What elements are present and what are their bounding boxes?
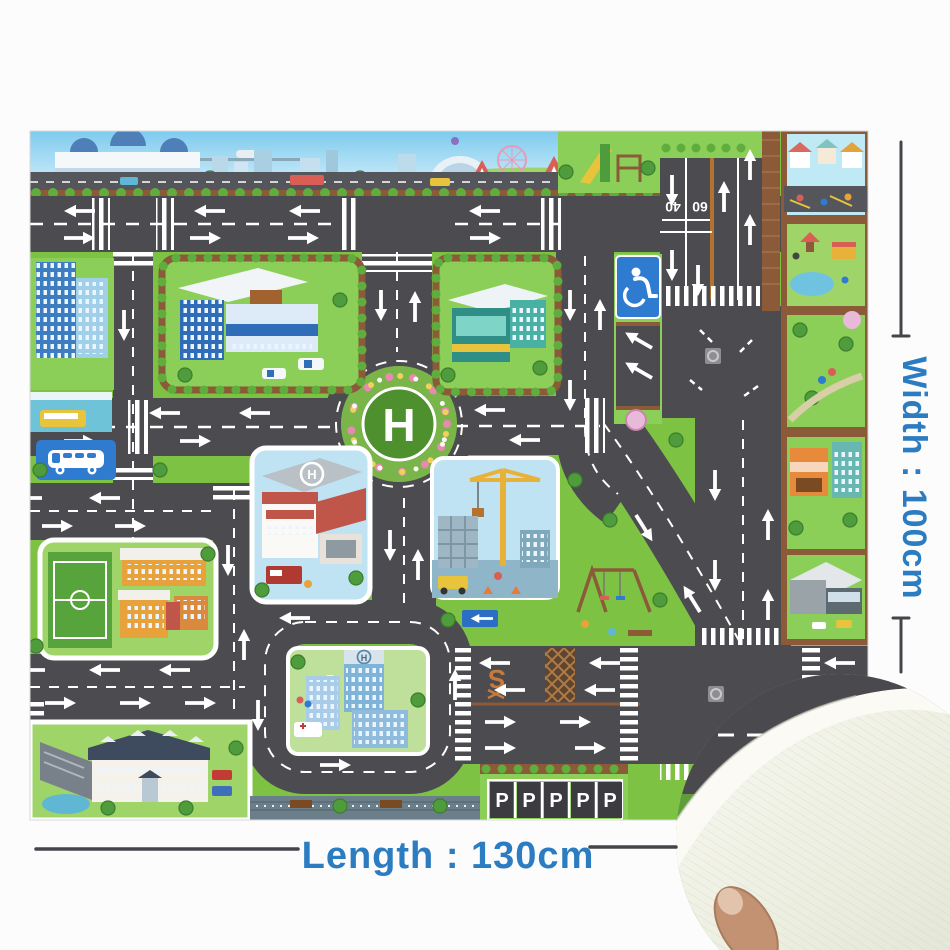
manhole-icon (708, 686, 724, 702)
boardwalk (250, 796, 480, 820)
hospital-helipad-letter: H (361, 653, 368, 663)
parking-letter: P (549, 790, 562, 812)
scene: S 40 60 (0, 0, 950, 950)
hospital-block: H (288, 648, 428, 754)
fire-helipad-letter: H (307, 467, 316, 482)
park-block-right (784, 311, 868, 430)
mansion-block (30, 722, 250, 820)
width-dimension-label: Width : 100cm (895, 356, 933, 599)
school-block (40, 540, 216, 658)
accessible-column (614, 254, 662, 430)
police-station-block (162, 258, 362, 390)
bus-sign-icon (36, 440, 116, 480)
houses-block (784, 131, 868, 218)
flower-tree (626, 410, 646, 430)
wheelchair-sign-icon (616, 256, 660, 318)
store-block (436, 258, 558, 392)
svg-text:60: 60 (692, 199, 708, 215)
construction-block (432, 458, 558, 598)
width-dimension: Width : 100cm (893, 142, 933, 672)
parking-letter: P (576, 790, 589, 812)
playground-top (558, 131, 660, 193)
helipad-letter: H (382, 399, 415, 451)
length-dimension: Length : 130cm (36, 835, 676, 877)
manhole-icon (705, 348, 721, 364)
length-dimension-label: Length : 130cm (302, 835, 595, 877)
svg-text:40: 40 (665, 199, 681, 215)
parking-letter: P (522, 790, 535, 812)
apartment-bus-block (30, 258, 116, 480)
box-junction (545, 648, 575, 702)
parking-area: P P P P P (480, 764, 628, 820)
pond-market-block (784, 221, 868, 309)
product-photo: S 40 60 (0, 0, 950, 950)
dealership-block (784, 552, 868, 642)
parking-letter: P (495, 790, 508, 812)
parking-letter: P (603, 790, 616, 812)
fire-station-block: H (252, 448, 370, 602)
shops-block (784, 434, 868, 554)
